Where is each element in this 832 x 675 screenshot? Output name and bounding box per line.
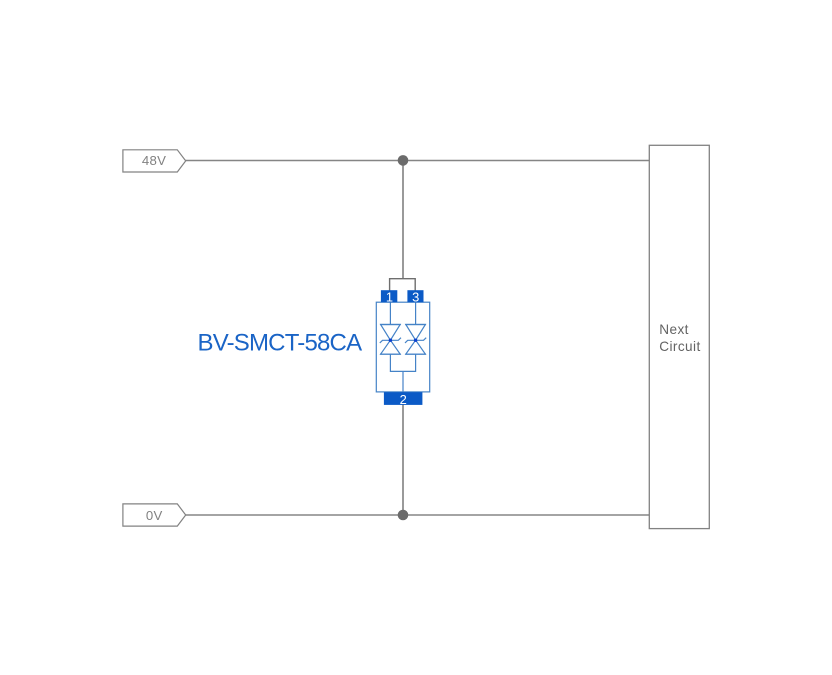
svg-text:48V: 48V — [142, 153, 166, 168]
svg-text:BV-SMCT-58CA: BV-SMCT-58CA — [198, 330, 363, 357]
svg-text:1: 1 — [386, 290, 393, 305]
svg-text:Circuit: Circuit — [659, 339, 700, 354]
svg-text:Next: Next — [659, 322, 689, 337]
svg-text:2: 2 — [400, 392, 407, 407]
svg-text:0V: 0V — [146, 508, 163, 523]
svg-text:3: 3 — [412, 290, 419, 305]
